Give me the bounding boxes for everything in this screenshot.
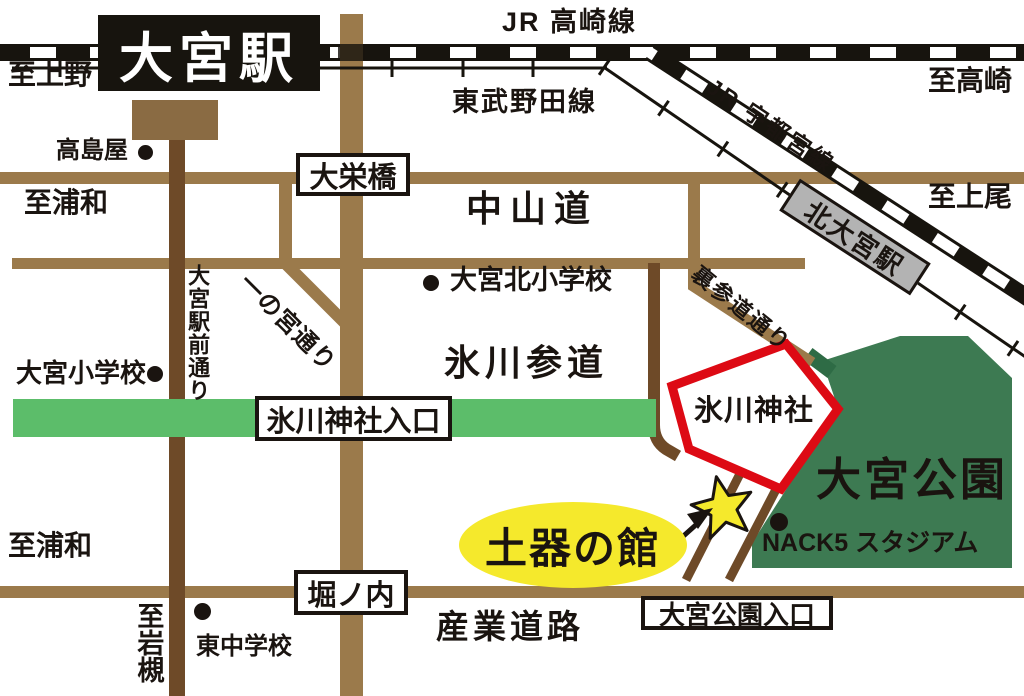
road-shrine-front <box>654 263 678 456</box>
omiya-elementary-label: 大宮小学校 <box>16 360 146 387</box>
omiya-station-label: 大宮駅 <box>119 14 299 93</box>
nack5-stadium-label: NACK5 スタジアム <box>762 530 978 556</box>
daieibashi-label: 大栄橋 <box>309 154 396 196</box>
omiya-station-box: 大宮駅 <box>98 15 320 91</box>
doki-no-yakata-highlight: 土器の館 <box>459 502 687 588</box>
hikawa-shrine-label: 氷川神社 <box>694 396 814 426</box>
takashimaya-dot <box>138 145 153 160</box>
omiya-park-label: 大宮公園 <box>816 456 1008 503</box>
road-connector-vertical <box>279 178 292 266</box>
doki-no-yakata-label: 土器の館 <box>485 515 661 576</box>
to-ueno-label: 至上野 <box>8 60 92 89</box>
hikawa-entrance-box: 氷川神社入口 <box>255 396 452 441</box>
park-entrance-label: 大宮公園入口 <box>659 595 815 632</box>
sangyo-doro-label: 産業道路 <box>436 610 584 645</box>
station-building <box>132 100 218 140</box>
omiya-elementary-dot <box>147 366 163 382</box>
horinouchi-label: 堀ノ内 <box>307 572 394 614</box>
to-urawa-bottom-label: 至浦和 <box>8 531 92 560</box>
road-second-horizontal <box>12 258 805 269</box>
park-entrance-box: 大宮公園入口 <box>641 596 833 630</box>
rail-road-overlap <box>338 44 365 61</box>
nakasendo-label: 中山道 <box>466 190 598 228</box>
to-takasaki-label: 至高崎 <box>928 66 1012 95</box>
higashi-junior-high-dot <box>194 603 211 620</box>
omiya-kita-elementary-label: 大宮北小学校 <box>450 266 612 294</box>
omiya-area-map: 大宮駅 北大宮駅 JR 高崎線 東武野田線 JR 宇都宮線 至上野 至高崎 至上… <box>0 0 1024 696</box>
takashimaya-label: 高島屋 <box>56 138 128 163</box>
to-iwatsuki-label: 至岩槻 <box>134 602 162 683</box>
horinouchi-box: 堀ノ内 <box>294 570 408 615</box>
daieibashi-box: 大栄橋 <box>296 153 410 196</box>
to-ageo-label: 至上尾 <box>928 182 1012 211</box>
omiya-kita-elementary-dot <box>423 275 439 291</box>
road-nakasendo <box>0 172 1024 184</box>
to-urawa-top-label: 至浦和 <box>24 188 108 217</box>
ekimae-dori-label: 大宮駅前通り <box>186 264 209 402</box>
hikawa-sando-label: 氷川参道 <box>444 344 608 382</box>
jr-takasaki-line-label: JR 高崎線 <box>502 8 637 36</box>
road-sangyo <box>0 586 1024 598</box>
higashi-junior-high-label: 東中学校 <box>196 634 292 659</box>
hikawa-entrance-label: 氷川神社入口 <box>266 398 440 440</box>
doki-no-yakata-star <box>687 470 759 540</box>
tobu-noda-line-label: 東武野田線 <box>452 88 597 116</box>
